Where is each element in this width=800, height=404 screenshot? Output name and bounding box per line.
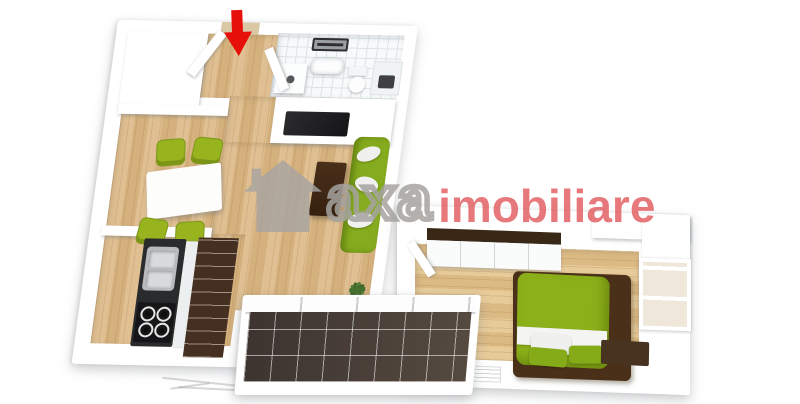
bed-pillow-green [569,346,604,364]
balcony-tile-floor [243,312,471,382]
entrance-arrow [223,10,253,57]
sketch-mark [162,377,242,387]
balcony-block [234,295,481,395]
bedroom-window [639,257,691,331]
toilet-tank [348,67,367,76]
bed-pillow-green [529,347,568,368]
dining-chair [190,136,225,166]
wall-tv [283,111,350,136]
shower-seat [378,75,396,88]
washbasin [310,58,344,75]
floor-plan-render: axa imobiliare [0,0,800,404]
bed-foot-bench [601,340,649,366]
sink-basin [145,270,173,288]
arrow-shaft [231,10,243,33]
dining-table [146,162,222,219]
bedroom-step-wall [642,214,690,260]
dining-chair [156,138,186,167]
wardrobe-sliding-doors [427,240,561,271]
bathroom-mirror [311,38,349,52]
sink-basin [148,250,176,268]
arrow-head [224,32,253,57]
